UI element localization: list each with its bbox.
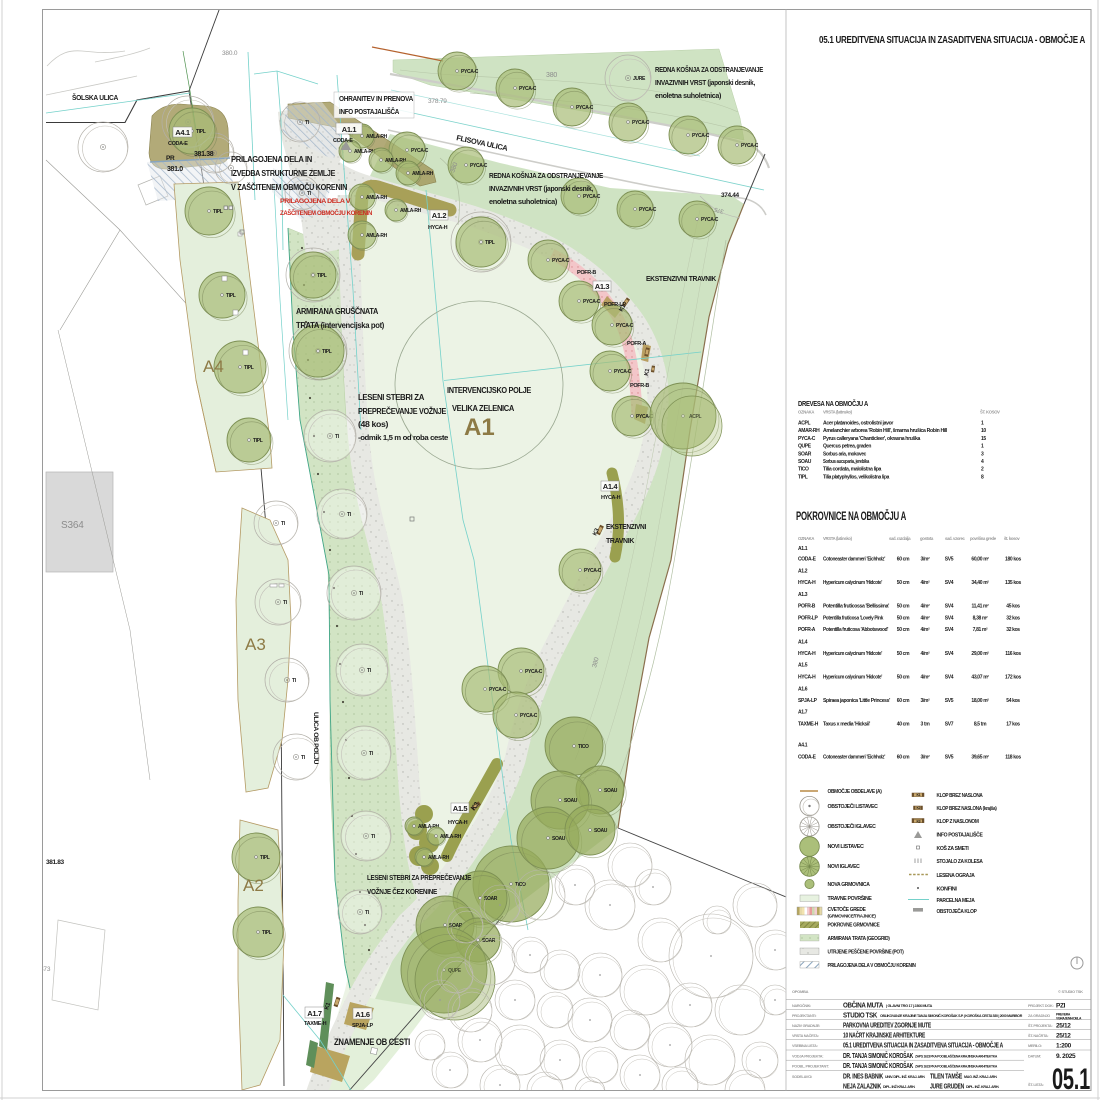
svg-text:11,41 m²: 11,41 m² [972, 604, 990, 610]
svg-text:VRSTA (latinsko): VRSTA (latinsko) [823, 410, 853, 415]
svg-text:Tilia cordata, malolistna lipa: Tilia cordata, malolistna lipa [823, 467, 882, 473]
svg-text:378.79: 378.79 [428, 98, 447, 105]
svg-text:50 cm: 50 cm [897, 651, 910, 657]
svg-text:K3: K3 [917, 819, 921, 823]
svg-text:JURE: JURE [633, 76, 646, 82]
svg-text:Cotoneaster dammeri 'Eichholz': Cotoneaster dammeri 'Eichholz' [823, 755, 885, 761]
svg-text:EKSTENZIVNI TRAVNIK: EKSTENZIVNI TRAVNIK [646, 274, 717, 283]
svg-text:60 cm: 60 cm [897, 698, 910, 704]
svg-text:TIPL: TIPL [322, 349, 332, 355]
svg-text:PYCA-C: PYCA-C [614, 369, 632, 375]
svg-text:SV4: SV4 [945, 616, 954, 622]
svg-text:ARMIRANA TRATA (GEOGRID): ARMIRANA TRATA (GEOGRID) [828, 936, 891, 942]
svg-text:Sorbus aucuparia, jerebika: Sorbus aucuparia, jerebika [823, 459, 869, 465]
svg-text:180 kos: 180 kos [1005, 557, 1021, 563]
svg-text:V ZAŠČITENEM OBMOČU KORENIN: V ZAŠČITENEM OBMOČU KORENIN [231, 183, 348, 192]
svg-text:4/m²: 4/m² [921, 604, 931, 610]
svg-text:ZAŠČITENEM OBMOČJU KORENIN: ZAŠČITENEM OBMOČJU KORENIN [280, 209, 372, 217]
svg-text:4/m²: 4/m² [921, 674, 931, 680]
svg-text:TAXME-H: TAXME-H [798, 722, 819, 728]
svg-text:60,00 m²: 60,00 m² [971, 557, 989, 563]
svg-text:HYCA-H: HYCA-H [798, 580, 816, 586]
svg-text:3 tm: 3 tm [921, 722, 931, 728]
svg-text:PYCA-C: PYCA-C [519, 86, 537, 92]
svg-text:OBMOČJE OBDELAVE (A): OBMOČJE OBDELAVE (A) [828, 788, 883, 795]
svg-text:(48 kos): (48 kos) [358, 420, 389, 429]
svg-text:05.1 UREDITVENA SITUACIJA IN Z: 05.1 UREDITVENA SITUACIJA IN ZASADITVENA… [843, 1041, 1003, 1050]
svg-text:NAZIV GRADNJE:: NAZIV GRADNJE: [792, 1024, 820, 1028]
svg-text:AMLA-RH: AMLA-RH [366, 233, 388, 239]
svg-text:AMLA-RH: AMLA-RH [412, 171, 434, 177]
svg-text:POKROVNE GRMOVNICE: POKROVNE GRMOVNICE [828, 923, 881, 929]
svg-text:POFR-A: POFR-A [627, 341, 646, 347]
svg-text:EKSTENZIVNI: EKSTENZIVNI [606, 522, 646, 531]
svg-text:enoletna suholetnica): enoletna suholetnica) [655, 91, 722, 100]
svg-text:50 cm: 50 cm [897, 627, 910, 633]
svg-text:OBČINA MUTA: OBČINA MUTA [843, 1001, 883, 1010]
svg-text:DREVESA NA OBMOČJU A: DREVESA NA OBMOČJU A [798, 399, 869, 408]
svg-text:TRAVNE POVRŠINE: TRAVNE POVRŠINE [828, 894, 873, 902]
svg-text:PYCA-C: PYCA-C [470, 163, 488, 169]
svg-text:VOŽNJE ČEZ KORENINE: VOŽNJE ČEZ KORENINE [367, 887, 437, 896]
svg-text:AMLA-RH: AMLA-RH [400, 208, 422, 214]
svg-text:118 kos: 118 kos [1005, 755, 1021, 761]
svg-text:OBSTOJEČA KLOP: OBSTOJEČA KLOP [937, 908, 978, 915]
svg-text:Taxus x media 'Hicksii': Taxus x media 'Hicksii' [823, 722, 870, 728]
svg-text:A1.1: A1.1 [342, 125, 357, 134]
svg-text:OPOMBA: OPOMBA [792, 989, 809, 994]
svg-text:IZVEDBA STRUKTURNE ZEMLJE: IZVEDBA STRUKTURNE ZEMLJE [231, 169, 336, 178]
svg-text:DR. INES BABNIK: DR. INES BABNIK [843, 1074, 883, 1081]
svg-text:STUDIO TSK: STUDIO TSK [843, 1013, 877, 1020]
svg-text:SPJA-LP: SPJA-LP [352, 1023, 373, 1029]
svg-text:INVAZIVNIH VRST (japonski desn: INVAZIVNIH VRST (japonski desnik, [655, 78, 755, 87]
svg-text:17 kos: 17 kos [1006, 722, 1020, 728]
svg-text:SV7: SV7 [945, 722, 954, 728]
svg-text:REDNA KOŠNJA ZA ODSTRANJEVANJE: REDNA KOŠNJA ZA ODSTRANJEVANJE [489, 171, 603, 180]
svg-text:VELIKA ZELENICA: VELIKA ZELENICA [452, 404, 515, 413]
svg-text:381.38: 381.38 [194, 151, 214, 158]
svg-text:DR. TANJA SIMONIČ KOROŠAK: DR. TANJA SIMONIČ KOROŠAK [843, 1051, 913, 1060]
svg-text:površina grede: površina grede [970, 536, 997, 541]
svg-text:A1.4: A1.4 [798, 640, 808, 646]
svg-text:43,07 m²: 43,07 m² [971, 674, 989, 680]
svg-text:SOAU: SOAU [552, 836, 566, 842]
svg-text:Tilia platyphyllos, velikolist: Tilia platyphyllos, velikolistna lipa [823, 474, 890, 480]
svg-text:KLOP BREZ NASLONA: KLOP BREZ NASLONA [937, 793, 984, 799]
svg-text:45 kos: 45 kos [1006, 604, 1020, 610]
svg-text:PREPREČEVANJE VOŽNJE: PREPREČEVANJE VOŽNJE [358, 407, 447, 416]
svg-text:TIPL: TIPL [262, 930, 272, 936]
svg-text:enoletna suholetnica): enoletna suholetnica) [489, 197, 558, 206]
svg-text:OBSTOJEČI LISTAVEC: OBSTOJEČI LISTAVEC [828, 803, 879, 810]
svg-text:S364: S364 [61, 520, 84, 531]
svg-text:A4: A4 [203, 357, 224, 376]
svg-text:OZNAKA: OZNAKA [798, 410, 814, 415]
svg-text:DR. TANJA SIMONIČ KOROŠAK: DR. TANJA SIMONIČ KOROŠAK [843, 1061, 913, 1070]
svg-text:HYCA-H: HYCA-H [798, 651, 816, 657]
svg-text:SOAU: SOAU [604, 788, 618, 794]
svg-text:VGRAJENIH DELA: VGRAJENIH DELA [1056, 1017, 1082, 1021]
svg-text:135 kos: 135 kos [1005, 580, 1021, 586]
svg-text:TIPL: TIPL [213, 209, 223, 215]
svg-text:OBLIKOVANJE KRAJINE TANJA SIMO: OBLIKOVANJE KRAJINE TANJA SIMONIČ KOROŠA… [880, 1013, 1022, 1018]
svg-text:PYCA-C: PYCA-C [692, 133, 710, 139]
svg-text:ZA GRADNJO: ZA GRADNJO [1028, 1014, 1050, 1018]
svg-text:A1.6: A1.6 [798, 686, 808, 692]
svg-text:JURE GRUDEN: JURE GRUDEN [930, 1084, 964, 1091]
svg-text:SV5: SV5 [945, 755, 954, 761]
svg-text:KOŠ ZA SMETI: KOŠ ZA SMETI [937, 844, 970, 852]
svg-text:SOAU: SOAU [594, 828, 608, 834]
svg-text:380.0: 380.0 [222, 50, 238, 57]
svg-text:TILEN TAMŠE: TILEN TAMŠE [930, 1072, 963, 1081]
svg-text:SV5: SV5 [945, 557, 954, 563]
svg-text:TIPL: TIPL [196, 129, 206, 135]
svg-text:UTRJENE PEŠČENE POVRŠINE (POT): UTRJENE PEŠČENE POVRŠINE (POT) [828, 948, 905, 956]
svg-text:29,00 m²: 29,00 m² [971, 651, 989, 657]
svg-text:ŠT. NAČRTA:: ŠT. NAČRTA: [1028, 1033, 1048, 1038]
svg-text:SOAR: SOAR [482, 938, 496, 944]
svg-text:AMLA-RH: AMLA-RH [366, 195, 388, 201]
svg-text:PYCA-C: PYCA-C [632, 120, 650, 126]
svg-text:SV4: SV4 [945, 674, 954, 680]
svg-text:A1.7: A1.7 [798, 710, 808, 716]
svg-text:50 cm: 50 cm [897, 674, 910, 680]
svg-text:POFR-LP: POFR-LP [798, 616, 819, 622]
svg-text:3/m²: 3/m² [921, 557, 931, 563]
svg-text:40 cm: 40 cm [897, 722, 910, 728]
svg-text:Potentilla fruticosa 'Abbotswo: Potentilla fruticosa 'Abbotswood' [823, 627, 888, 633]
svg-text:DIPL. INŽ. KRAJ. ARH.: DIPL. INŽ. KRAJ. ARH. [966, 1084, 999, 1089]
svg-text:OHRANITEV IN PRENOVA: OHRANITEV IN PRENOVA [339, 94, 414, 103]
svg-text:STOJALO ZA KOLESA: STOJALO ZA KOLESA [937, 859, 984, 865]
svg-text:Sorbus aria, mokovec: Sorbus aria, mokovec [823, 451, 867, 457]
svg-text:CODA-E: CODA-E [333, 138, 353, 144]
svg-text:POFR-B: POFR-B [798, 604, 816, 610]
svg-text:32 kos: 32 kos [1006, 627, 1020, 633]
svg-text:A1.1: A1.1 [798, 546, 808, 552]
svg-text:15: 15 [981, 436, 986, 442]
svg-text:KLOP Z NASLONOM: KLOP Z NASLONOM [937, 819, 979, 825]
svg-text:4/m²: 4/m² [921, 627, 931, 633]
svg-text:50 cm: 50 cm [897, 616, 910, 622]
svg-text:Cotoneaster dammeri 'Eichholz': Cotoneaster dammeri 'Eichholz' [823, 557, 885, 563]
svg-text:25/12: 25/12 [1056, 1023, 1071, 1030]
svg-text:HYCA-H: HYCA-H [601, 495, 621, 501]
svg-text:Amelanchier arborea 'Robin Hil: Amelanchier arborea 'Robin Hill', šmarna… [823, 428, 948, 434]
svg-text:ZNAMENJE OB CESTI: ZNAMENJE OB CESTI [334, 1037, 410, 1047]
svg-text:39,65 m²: 39,65 m² [971, 755, 989, 761]
svg-text:INFO POSTAJALIŠČE: INFO POSTAJALIŠČE [937, 831, 984, 839]
svg-text:172 kos: 172 kos [1005, 674, 1021, 680]
svg-text:REDNA KOŠNJA ZA ODSTRANJEVANJE: REDNA KOŠNJA ZA ODSTRANJEVANJE [655, 65, 763, 74]
svg-text:HYCA-H: HYCA-H [798, 674, 816, 680]
svg-text:OZNAKA: OZNAKA [798, 536, 814, 541]
svg-text:PROJEKT. DOK:: PROJEKT. DOK: [1028, 1004, 1053, 1008]
svg-text:PYCA-C: PYCA-C [583, 194, 601, 200]
svg-text:TICO: TICO [798, 467, 809, 473]
svg-text:Quercus petrea, graden: Quercus petrea, graden [823, 444, 871, 450]
svg-text:AMLA-RH: AMLA-RH [428, 855, 450, 861]
svg-text:Hypericum calycinum 'Hidcote': Hypericum calycinum 'Hidcote' [823, 580, 882, 586]
svg-text:TAXME-H: TAXME-H [304, 1021, 327, 1027]
svg-text:1:200: 1:200 [1056, 1043, 1072, 1050]
svg-text:60 cm: 60 cm [897, 557, 910, 563]
svg-text:7,81 m²: 7,81 m² [973, 627, 988, 633]
svg-text:PROJEKTANTI:: PROJEKTANTI: [792, 1014, 816, 1018]
svg-text:54 kos: 54 kos [1006, 698, 1020, 704]
svg-text:34,40 m²: 34,40 m² [971, 580, 989, 586]
svg-text:A2: A2 [243, 876, 264, 895]
svg-text:PARKOVNA UREDITEV ZGORNJE MUTE: PARKOVNA UREDITEV ZGORNJE MUTE [843, 1023, 931, 1030]
svg-text:ZAPS 1623 PKA POOBLAŠČENA KRAJ: ZAPS 1623 PKA POOBLAŠČENA KRAJINSKA ARHI… [915, 1064, 997, 1069]
svg-text:POFR-A: POFR-A [798, 627, 816, 633]
svg-text:PR: PR [166, 155, 175, 162]
svg-text:MERILO:: MERILO: [1028, 1044, 1042, 1048]
svg-text:TIPL: TIPL [485, 240, 495, 246]
svg-text:05.1 UREDITVENA SITUACIJA IN Z: 05.1 UREDITVENA SITUACIJA IN ZASADITVENA… [819, 33, 1086, 46]
svg-text:TIPL: TIPL [260, 855, 270, 861]
svg-text:A1.5: A1.5 [453, 804, 468, 813]
svg-text:SV4: SV4 [945, 651, 954, 657]
svg-text:ARMIRANA GRUŠČNATA: ARMIRANA GRUŠČNATA [296, 307, 379, 316]
svg-text:LESENI STEBRI ZA PREPREČEVANJE: LESENI STEBRI ZA PREPREČEVANJE [367, 873, 471, 882]
svg-text:PYCA-C: PYCA-C [525, 669, 543, 675]
svg-text:št. kosov: št. kosov [1004, 536, 1020, 541]
svg-text:NAROČNIK:: NAROČNIK: [792, 1003, 811, 1008]
svg-text:SODELAVCI:: SODELAVCI: [792, 1075, 812, 1079]
svg-text:50 cm: 50 cm [897, 604, 910, 610]
svg-text:TIPL: TIPL [317, 273, 327, 279]
svg-text:PYCA-C: PYCA-C [489, 687, 507, 693]
svg-text:NOVI LISTAVEC: NOVI LISTAVEC [828, 844, 865, 850]
svg-text:K2: K2 [917, 806, 921, 810]
svg-text:ZAPS 1623 PKA POOBLAŠČENA KRAJ: ZAPS 1623 PKA POOBLAŠČENA KRAJINSKA ARHI… [915, 1054, 997, 1059]
svg-text:KONFINI: KONFINI [937, 887, 958, 893]
svg-text:381.83: 381.83 [46, 859, 65, 866]
svg-text:| GLAVNI TRG 17 | 2366 MUTA: | GLAVNI TRG 17 | 2366 MUTA [886, 1003, 932, 1008]
svg-text:VRSTA (latinsko): VRSTA (latinsko) [823, 536, 853, 541]
svg-text:A1.7: A1.7 [307, 1009, 322, 1018]
svg-text:SV4: SV4 [945, 604, 954, 610]
svg-text:A1.2: A1.2 [432, 211, 447, 220]
svg-text:PYCA-C: PYCA-C [583, 299, 601, 305]
svg-text:60 cm: 60 cm [897, 755, 910, 761]
svg-text:INVAZIVNIH VRST (japonski desn: INVAZIVNIH VRST (japonski desnik, [489, 184, 593, 193]
svg-text:A1.4: A1.4 [603, 482, 619, 491]
svg-text:380: 380 [546, 72, 557, 79]
svg-text:A1.2: A1.2 [798, 569, 808, 575]
svg-text:3/m²: 3/m² [921, 698, 931, 704]
svg-text:PRILAGOJENA DELA V: PRILAGOJENA DELA V [280, 199, 350, 205]
svg-text:10: 10 [981, 428, 986, 434]
svg-text:8,38 m²: 8,38 m² [973, 616, 988, 622]
svg-text:TIPL: TIPL [244, 365, 254, 371]
svg-text:VODJA PROJEKTA:: VODJA PROJEKTA: [792, 1055, 823, 1059]
svg-text:VRSTA NAČRTA:: VRSTA NAČRTA: [792, 1033, 819, 1038]
svg-text:CODA-E: CODA-E [168, 141, 188, 147]
svg-text:AMLA-RH: AMLA-RH [366, 134, 388, 140]
svg-text:ŠOLSKA ULICA: ŠOLSKA ULICA [72, 93, 119, 102]
svg-text:POOBL. PROJEKTANT:: POOBL. PROJEKTANT: [792, 1065, 829, 1069]
svg-text:KLOP BREZ NASLONA (krajša): KLOP BREZ NASLONA (krajša) [937, 806, 998, 812]
svg-text:AMLA-RH: AMLA-RH [440, 834, 462, 840]
svg-text:OBSTOJEČI IGLAVEC: OBSTOJEČI IGLAVEC [828, 823, 877, 830]
svg-text:Spiraea japonica 'Little Princ: Spiraea japonica 'Little Princess' [823, 698, 890, 704]
svg-text:CVETOČE GREDE: CVETOČE GREDE [828, 906, 867, 913]
svg-text:SOAR: SOAR [798, 451, 812, 457]
svg-text:HYCA-H: HYCA-H [448, 820, 468, 826]
svg-text:PYCA-C: PYCA-C [461, 69, 479, 75]
svg-text:SV5: SV5 [945, 698, 954, 704]
svg-text:TIPL: TIPL [226, 293, 236, 299]
svg-text:50 cm: 50 cm [897, 580, 910, 586]
svg-text:-odmik 1,5 m od roba ceste: -odmik 1,5 m od roba ceste [358, 435, 448, 442]
svg-text:ULICA OB POLJU: ULICA OB POLJU [312, 712, 319, 765]
svg-text:PYCA-C: PYCA-C [639, 207, 657, 213]
svg-text:INTERVENCIJSKO POLJE: INTERVENCIJSKO POLJE [447, 386, 532, 395]
svg-text:DATUM:: DATUM: [1028, 1055, 1041, 1059]
svg-text:SOAU: SOAU [798, 459, 812, 465]
svg-text:PYCA-C: PYCA-C [576, 105, 594, 111]
svg-text:PYCA-C: PYCA-C [798, 436, 816, 442]
svg-text:Potentilla fruticossa 'Belliss: Potentilla fruticossa 'Bellissima' [823, 604, 889, 610]
svg-text:TRATA (intervencijska pot): TRATA (intervencijska pot) [296, 321, 385, 330]
svg-text:POFR-B: POFR-B [630, 383, 649, 389]
svg-text:18,00 m²: 18,00 m² [971, 698, 989, 704]
svg-text:TIPL: TIPL [798, 474, 808, 480]
svg-text:VSEBINA LISTA:: VSEBINA LISTA: [792, 1044, 818, 1048]
svg-text:sad. razdalja: sad. razdalja [889, 536, 911, 541]
svg-text:PARCELNA MEJA: PARCELNA MEJA [937, 898, 976, 904]
svg-text:PYCA-C: PYCA-C [616, 323, 634, 329]
svg-text:381.0: 381.0 [167, 166, 183, 173]
svg-text:116 kos: 116 kos [1005, 651, 1021, 657]
svg-text:DIPL. INŽ KRAJ. ARH.: DIPL. INŽ KRAJ. ARH. [883, 1084, 915, 1089]
svg-text:4/m²: 4/m² [921, 616, 931, 622]
svg-text:LESENI STEBRI ZA: LESENI STEBRI ZA [358, 393, 425, 402]
svg-text:A1.3: A1.3 [595, 282, 610, 291]
svg-text:PYCA-C: PYCA-C [411, 148, 429, 154]
svg-text:ACPL: ACPL [798, 421, 811, 427]
svg-text:NOVI IGLAVEC: NOVI IGLAVEC [828, 864, 861, 870]
svg-text:PYCA-C: PYCA-C [701, 217, 719, 223]
svg-text:8,5 tm: 8,5 tm [974, 722, 987, 728]
svg-text:TRAVNIK: TRAVNIK [606, 536, 635, 545]
svg-text:4/m²: 4/m² [921, 580, 931, 586]
svg-text:Hypericum calycinum 'Hidcote': Hypericum calycinum 'Hidcote' [823, 651, 882, 657]
svg-text:PZI: PZI [1056, 1003, 1066, 1010]
svg-text:374.44: 374.44 [721, 192, 740, 199]
svg-text:05.1: 05.1 [1052, 1063, 1090, 1096]
svg-text:K1: K1 [917, 793, 921, 797]
svg-text:PRILAGOJENA DELA IN: PRILAGOJENA DELA IN [231, 155, 313, 164]
svg-text:Pyrus calleryana 'Chanticleer': Pyrus calleryana 'Chanticleer', okrasna … [823, 436, 921, 442]
svg-text:PYCA-C: PYCA-C [741, 143, 759, 149]
svg-text:SOAU: SOAU [564, 798, 578, 804]
svg-text:Hypericum calycinum 'Hidcote': Hypericum calycinum 'Hidcote' [823, 674, 882, 680]
svg-text:gostota: gostota [920, 536, 934, 541]
svg-text:TIPL: TIPL [253, 438, 263, 444]
svg-text:POFR-B: POFR-B [577, 270, 596, 276]
svg-text:ŠT. PROJEKTA:: ŠT. PROJEKTA: [1028, 1023, 1052, 1028]
svg-text:PYCA-C: PYCA-C [552, 258, 570, 264]
svg-text:PYCA-C: PYCA-C [584, 568, 602, 574]
svg-text:Potentilla fruticosa 'Lovely P: Potentilla fruticosa 'Lovely Pink [823, 616, 884, 622]
svg-text:3/m²: 3/m² [921, 755, 931, 761]
svg-text:SV4: SV4 [945, 580, 954, 586]
svg-text:A1.5: A1.5 [798, 663, 808, 669]
svg-text:A4.1: A4.1 [175, 128, 190, 137]
svg-text:INFO POSTAJALIŠČA: INFO POSTAJALIŠČA [339, 107, 400, 116]
svg-text:32 kos: 32 kos [1006, 616, 1020, 622]
svg-text:A3: A3 [245, 635, 266, 654]
svg-text:PYCA-C: PYCA-C [520, 713, 538, 719]
svg-text:NEJA ZALAZNIK: NEJA ZALAZNIK [843, 1084, 881, 1091]
svg-text:sad. vzorec: sad. vzorec [945, 536, 965, 541]
svg-text:A1.6: A1.6 [355, 1010, 370, 1019]
svg-text:QUPE: QUPE [798, 444, 812, 450]
svg-text:A4.1: A4.1 [798, 742, 808, 748]
svg-text:9. 2025: 9. 2025 [1056, 1053, 1076, 1060]
svg-text:AMAR-RH: AMAR-RH [798, 428, 820, 434]
svg-text:(GRMOVNICE/TRAJNICE): (GRMOVNICE/TRAJNICE) [828, 914, 877, 919]
svg-text:PRILAGOJENA DELA V OBMOČJU KOR: PRILAGOJENA DELA V OBMOČJU KORENIN [828, 962, 917, 969]
svg-text:CODA-E: CODA-E [798, 755, 817, 761]
svg-text:CODA-E: CODA-E [798, 557, 817, 563]
svg-text:Acer platanoides, ostrolistni: Acer platanoides, ostrolistni javor [823, 421, 893, 427]
svg-text:MAG. INŽ. KRAJ. ARH.: MAG. INŽ. KRAJ. ARH. [964, 1074, 997, 1079]
svg-text:SV4: SV4 [945, 627, 954, 633]
svg-text:POKROVNICE NA OBMOČJU A: POKROVNICE NA OBMOČJU A [796, 510, 906, 523]
svg-text:NOVA GRMOVNICA: NOVA GRMOVNICA [828, 882, 871, 888]
svg-text:ŠT. LISTA:: ŠT. LISTA: [1028, 1082, 1044, 1087]
svg-text:UNIV. DIPL. INŽ. KRAJ. ARH.: UNIV. DIPL. INŽ. KRAJ. ARH. [885, 1074, 925, 1079]
svg-text:© STUDIO TSK: © STUDIO TSK [1058, 989, 1083, 994]
svg-text:ŠT. KOSOV: ŠT. KOSOV [980, 410, 1000, 415]
svg-text:A1.3: A1.3 [798, 592, 808, 598]
svg-text:TICO: TICO [578, 744, 589, 750]
svg-text:SPJA-LP: SPJA-LP [798, 698, 818, 704]
svg-text:HYCA-H: HYCA-H [428, 225, 448, 231]
svg-text:LESENA OGRAJA: LESENA OGRAJA [937, 873, 976, 879]
svg-text:10 NAČRT KRAJINSKE ARHITEKTURE: 10 NAČRT KRAJINSKE ARHITEKTURE [843, 1031, 925, 1040]
svg-text:4/m²: 4/m² [921, 651, 931, 657]
svg-text:25/12: 25/12 [1056, 1033, 1071, 1040]
svg-text:A1: A1 [464, 414, 495, 441]
